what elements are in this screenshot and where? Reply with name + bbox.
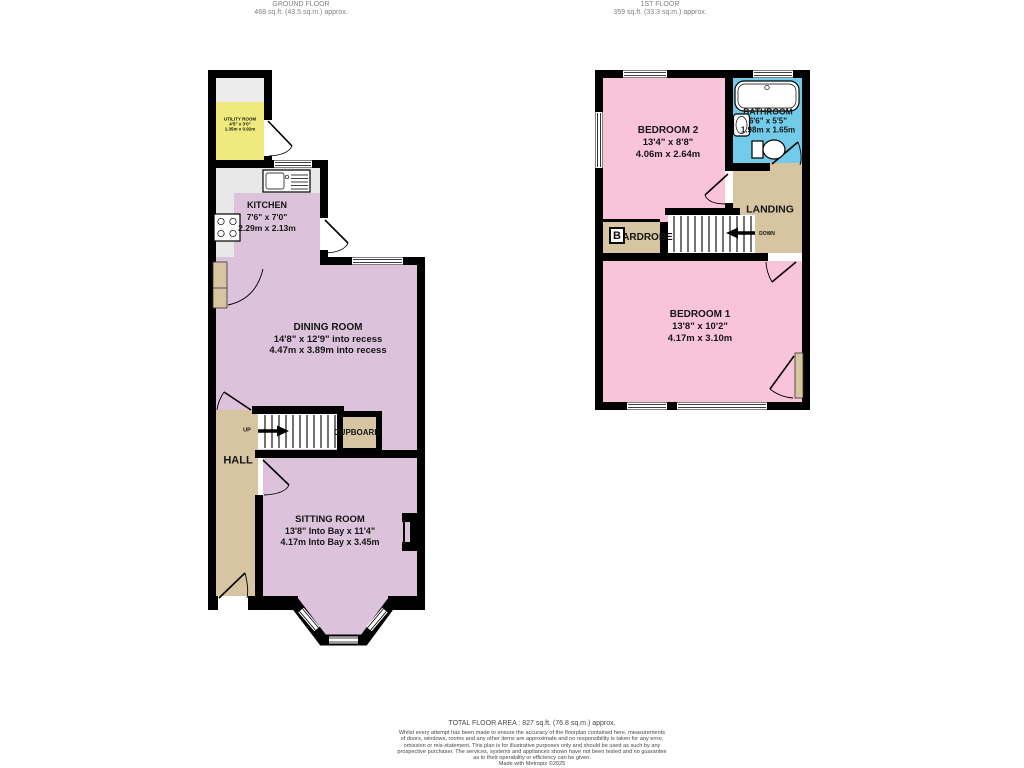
bedroom2-side-window — [596, 112, 603, 168]
stairs-up — [258, 414, 341, 449]
bedroom1-window-right — [677, 403, 767, 410]
bathroom-window — [753, 71, 793, 78]
ground-floor-title: GROUND FLOOR — [254, 1, 347, 9]
first-floor-header: 1ST FLOOR 359 sq.ft. (33.3 sq.m.) approx… — [613, 1, 706, 17]
cupboard-label: CUPBOARD — [334, 428, 380, 438]
disclaimer-line: of doors, windows, rooms and any other i… — [397, 736, 666, 742]
up-label: UP — [243, 428, 251, 435]
kitchen-label: KITCHEN 7'6" x 7'0" 2.29m x 2.13m — [238, 200, 296, 235]
stairs-down — [668, 215, 755, 253]
hob-icon — [214, 214, 240, 241]
bedroom1-window-left — [627, 403, 667, 410]
credit-line: Made with Metropix ©2025 — [397, 761, 666, 767]
landing-label: LANDING — [746, 204, 794, 217]
bedroom1-label: BEDROOM 1 13'8" x 10'2" 4.17m x 3.10m — [668, 309, 732, 345]
bedroom2-top-window — [623, 71, 667, 78]
toilet-icon — [752, 140, 785, 159]
total-floor-area: TOTAL FLOOR AREA : 827 sq.ft. (76.8 sq.m… — [448, 720, 615, 727]
utility-counter — [216, 78, 264, 102]
ground-floor-area: 468 sq.ft. (43.5 sq.m.) approx. — [254, 9, 347, 17]
kitchen-window — [274, 161, 312, 168]
hall-area — [216, 410, 258, 596]
first-floor-area: 359 sq.ft. (33.3 sq.m.) approx. — [613, 9, 706, 17]
utility-door — [268, 121, 292, 156]
disclaimer-line: omission or mis-statement. This plan is … — [397, 743, 666, 749]
down-label: DOWN — [759, 231, 775, 237]
dining-room-label: DINING ROOM 14'8" x 12'9" into recess 4.… — [269, 322, 386, 357]
disclaimer: Whilst every attempt has been made to en… — [397, 730, 666, 768]
ground-floor-header: GROUND FLOOR 468 sq.ft. (43.5 sq.m.) app… — [254, 1, 347, 17]
hall-label: HALL — [223, 454, 252, 467]
floorplan-page: GROUND FLOOR 468 sq.ft. (43.5 sq.m.) app… — [0, 0, 1024, 768]
floorplan-graphics — [0, 0, 1024, 768]
kitchen-door — [325, 220, 348, 253]
sitting-room-label: SITTING ROOM 13'8" Into Bay x 11'4" 4.17… — [280, 514, 379, 549]
first-floor-title: 1ST FLOOR — [613, 1, 706, 9]
bathroom-label: BATHROOM 6'6" x 5'5" 1.98m x 1.65m — [741, 108, 795, 135]
boiler-icon: B — [609, 227, 625, 244]
dining-window — [352, 258, 403, 265]
utility-room-label: UTILITY ROOM 4'5" x 3'0" 1.35m x 0.92m — [224, 117, 256, 132]
sink-icon — [263, 170, 310, 192]
bedroom2-label: BEDROOM 2 13'4" x 8'8" 4.06m x 2.64m — [636, 125, 700, 161]
